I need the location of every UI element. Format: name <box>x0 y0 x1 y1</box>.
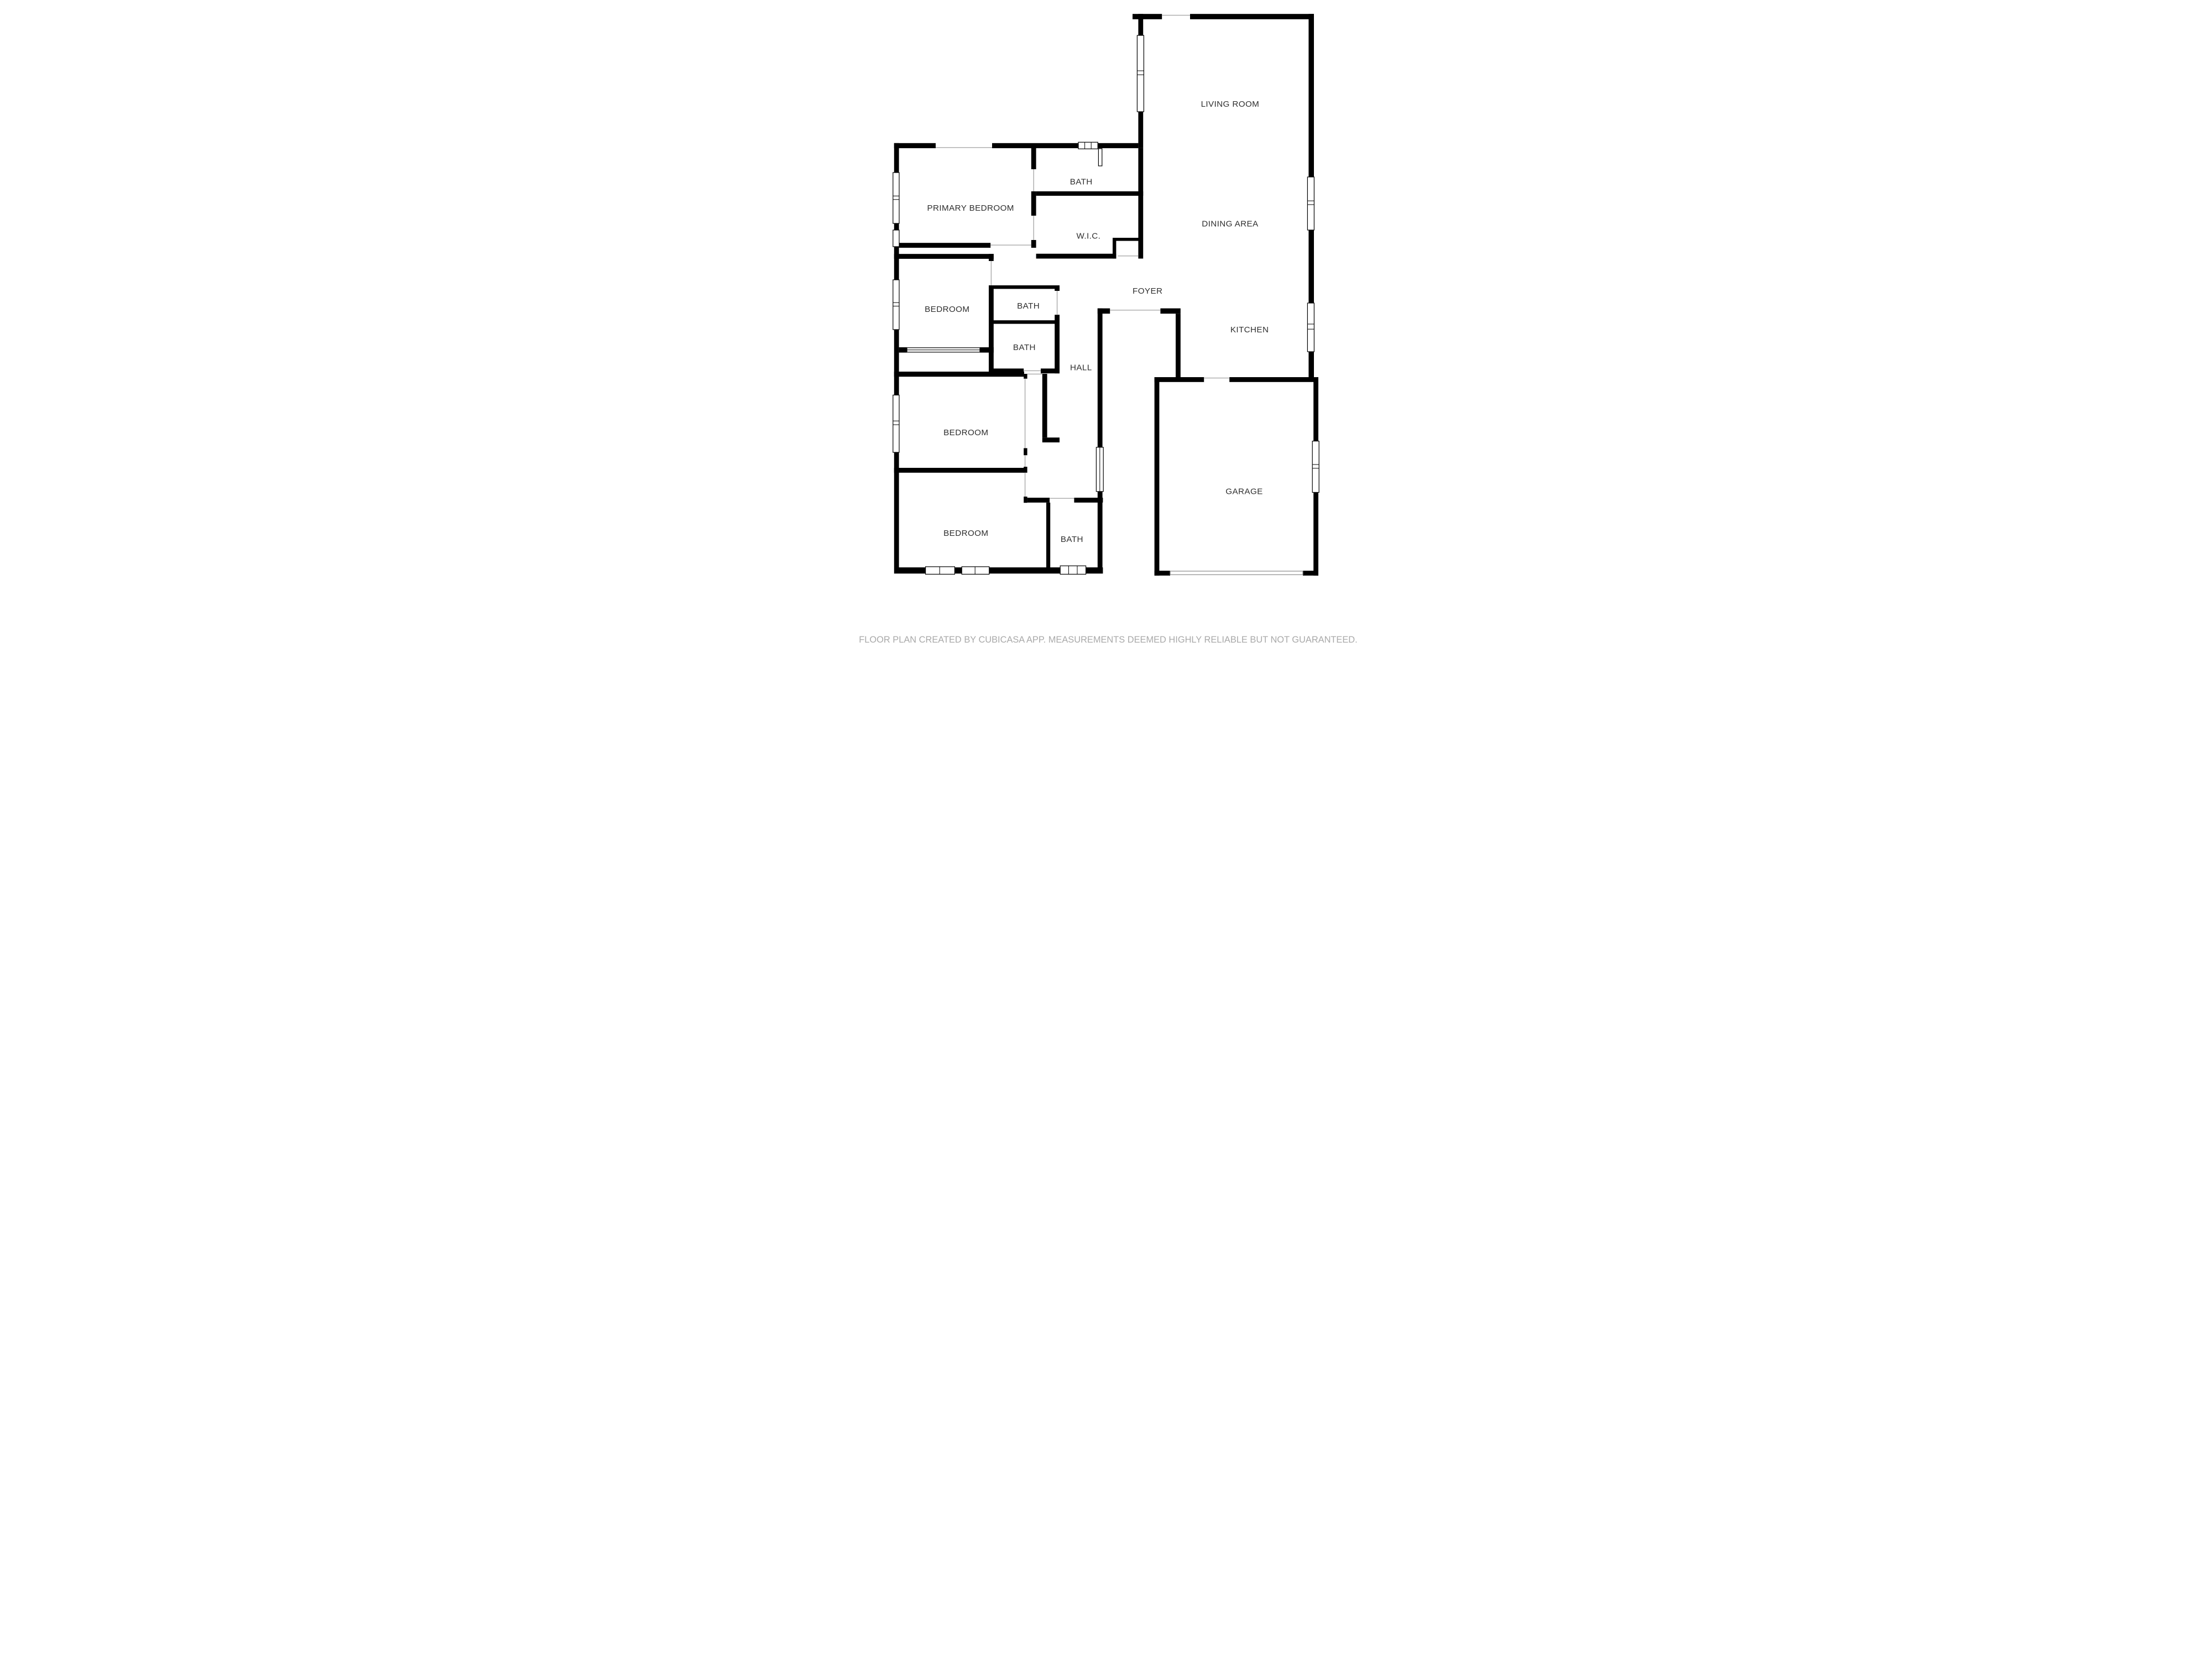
pocket-door-icon <box>1096 447 1103 492</box>
wall <box>1027 498 1050 503</box>
wall <box>989 285 1060 289</box>
room-label-bath-mid-lower: BATH <box>1013 343 1036 352</box>
room-label-bedroom-2: BEDROOM <box>925 305 969 314</box>
wall <box>1024 467 1027 473</box>
room-label-hall: HALL <box>1070 363 1092 373</box>
wall <box>899 347 907 353</box>
wall <box>1031 240 1036 248</box>
wall <box>980 347 994 353</box>
footer-disclaimer: FLOOR PLAN CREATED BY CUBICASA APP. MEAS… <box>859 635 1357 645</box>
wall <box>1113 238 1116 259</box>
wall <box>1313 492 1318 575</box>
wall <box>1098 492 1103 567</box>
window-icon <box>893 230 899 247</box>
window-icon <box>1137 35 1144 112</box>
wall <box>1190 14 1314 19</box>
room-label-bedroom-3: BEDROOM <box>943 428 988 437</box>
sliding-door-icon <box>907 348 980 352</box>
door-threshold-icon <box>1078 142 1098 149</box>
wall <box>989 320 1060 324</box>
wall <box>1086 567 1103 573</box>
window-icon <box>1060 566 1086 574</box>
room-label-living-room: LIVING ROOM <box>1201 100 1260 109</box>
wall <box>1036 191 1144 196</box>
wall <box>1098 143 1138 148</box>
floor-plan-canvas: LIVING ROOM BATH PRIMARY BEDROOM DINING … <box>664 0 1548 664</box>
window-icon <box>1312 441 1319 493</box>
wall <box>894 223 899 230</box>
room-label-bath-mid-upper: BATH <box>1017 301 1040 311</box>
room-label-garage: GARAGE <box>1225 487 1262 497</box>
wall <box>1155 377 1160 576</box>
wall <box>992 143 1078 148</box>
room-label-bedroom-4: BEDROOM <box>943 529 988 538</box>
wall <box>1024 374 1027 379</box>
wall <box>894 143 936 148</box>
wall <box>954 567 962 573</box>
wall <box>1098 309 1110 314</box>
room-label-dining-area: DINING AREA <box>1202 220 1259 229</box>
garage-door-icon <box>1170 571 1303 575</box>
wall <box>1308 230 1314 303</box>
wall <box>1036 254 1117 259</box>
wall <box>1176 314 1181 379</box>
window-icon <box>1307 177 1314 230</box>
window-icon <box>962 567 989 575</box>
wall <box>1138 112 1143 148</box>
wall <box>1024 497 1027 503</box>
window-icon <box>1307 303 1314 352</box>
wall <box>1138 14 1143 35</box>
wall <box>1024 448 1027 455</box>
wall <box>989 254 994 261</box>
floor-plan-page: LIVING ROOM BATH PRIMARY BEDROOM DINING … <box>664 0 1548 664</box>
wall <box>1031 191 1036 216</box>
wall <box>1042 374 1047 437</box>
room-label-foyer: FOYER <box>1133 286 1162 296</box>
wall <box>894 330 899 395</box>
wall <box>1098 309 1103 447</box>
wall <box>899 243 991 248</box>
wall <box>894 254 994 259</box>
wall <box>1046 503 1050 567</box>
wall <box>894 567 926 573</box>
window-icon <box>926 567 955 575</box>
window-icon <box>893 395 899 452</box>
wall <box>1160 309 1180 314</box>
wall <box>1133 14 1162 19</box>
wall <box>1055 285 1060 291</box>
wall <box>894 143 899 173</box>
window-icon <box>893 280 899 330</box>
window-icon <box>893 173 899 223</box>
wall <box>894 247 899 280</box>
wall <box>894 372 1024 377</box>
wall <box>989 567 1060 573</box>
wall <box>1308 352 1314 379</box>
wall <box>1303 571 1318 576</box>
room-label-kitchen: KITCHEN <box>1230 325 1269 335</box>
door-leaf-icon <box>1098 149 1102 166</box>
wall <box>1041 368 1060 373</box>
wall <box>894 468 1024 473</box>
wall <box>1229 377 1318 382</box>
room-label-wic: W.I.C. <box>1077 232 1101 241</box>
wall <box>989 285 994 373</box>
wall <box>1138 148 1143 259</box>
room-label-bath-top: BATH <box>1070 178 1093 187</box>
wall <box>1313 377 1318 441</box>
wall <box>1155 571 1170 576</box>
room-label-bath-bottom: BATH <box>1061 535 1083 544</box>
wall <box>1113 238 1142 241</box>
garage-walls <box>1155 377 1318 576</box>
wall <box>1031 148 1036 169</box>
wall <box>1308 14 1314 177</box>
wall <box>1042 437 1060 442</box>
room-label-primary-bedroom: PRIMARY BEDROOM <box>927 204 1014 213</box>
